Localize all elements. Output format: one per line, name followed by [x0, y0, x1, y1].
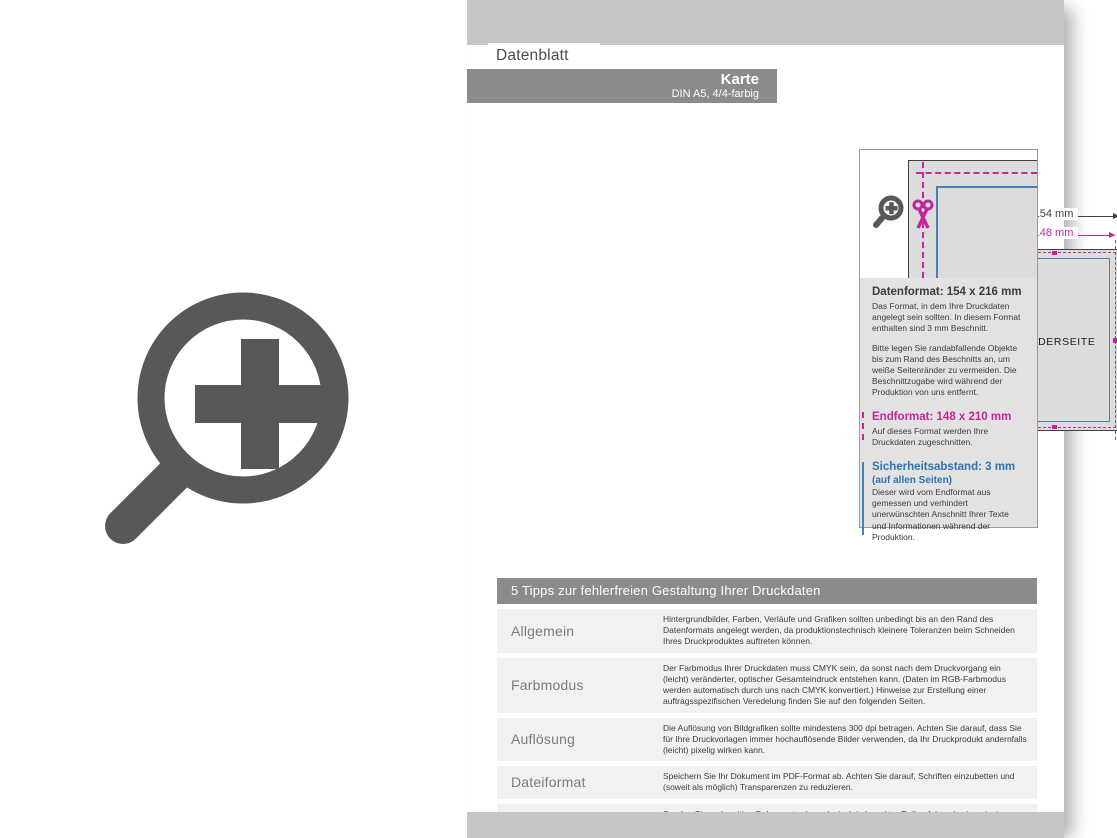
- scissors-icon: [909, 198, 937, 237]
- zoom-plus-icon: [95, 268, 360, 563]
- table-row: Auflösung Die Auflösung von Bildgrafiken…: [497, 718, 1037, 762]
- safety-line-legend-swatch: [862, 462, 864, 535]
- endformat-title: Endformat: 148 x 210 mm: [872, 411, 1025, 425]
- corner-detail-illustration: [860, 150, 1037, 278]
- cut-line-legend-swatch: [862, 412, 864, 440]
- endformat-paragraph: Auf dieses Format werden Ihre Druckdaten…: [872, 426, 1025, 448]
- datenformat-title: Datenformat: 154 x 216 mm: [872, 286, 1025, 300]
- tip-text: Die Auflösung von Bildgrafiken sollte mi…: [663, 718, 1037, 762]
- datenformat-section: Datenformat: 154 x 216 mm Das Format, in…: [872, 286, 1025, 398]
- product-title: Karte: [467, 71, 759, 88]
- tip-text: Speichern Sie Ihr Dokument im PDF-Format…: [663, 766, 1037, 798]
- table-row: Allgemein Hintergrundbilder, Farben, Ver…: [497, 609, 1037, 653]
- format-info-text: Datenformat: 154 x 216 mm Das Format, in…: [860, 278, 1037, 527]
- bottom-gray-bar: [467, 812, 1064, 838]
- table-row: Dateiformat Speichern Sie Ihr Dokument i…: [497, 766, 1037, 798]
- tip-label: Farbmodus: [497, 658, 663, 713]
- sicherheitsabstand-subtitle: (auf allen Seiten): [872, 475, 1025, 487]
- datenformat-paragraph-1: Das Format, in dem Ihre Druckdaten angel…: [872, 301, 1025, 334]
- datenblatt-tab: Datenblatt: [488, 43, 600, 69]
- sicherheitsabstand-section: Sicherheitsabstand: 3 mm (auf allen Seit…: [872, 461, 1025, 543]
- tip-text: Der Farbmodus Ihrer Druckdaten muss CMYK…: [663, 658, 1037, 713]
- datenformat-paragraph-2: Bitte legen Sie randabfallende Objekte b…: [872, 343, 1025, 398]
- datasheet-sheet: Datenblatt Karte DIN A5, 4/4-farbig 154 …: [467, 0, 1064, 838]
- datasheet-page-view: Datenblatt Karte DIN A5, 4/4-farbig 154 …: [0, 0, 1117, 838]
- table-row: Farbmodus Der Farbmodus Ihrer Druckdaten…: [497, 658, 1037, 713]
- zoom-plus-icon: [870, 194, 906, 237]
- tip-text: Hintergrundbilder, Farben, Verläufe und …: [663, 609, 1037, 653]
- tip-label: Auflösung: [497, 718, 663, 762]
- tips-table: 5 Tipps zur fehlerfreien Gestaltung Ihre…: [497, 578, 1037, 838]
- tips-table-title: 5 Tipps zur fehlerfreien Gestaltung Ihre…: [497, 578, 1037, 604]
- sicherheitsabstand-title: Sicherheitsabstand: 3 mm: [872, 461, 1025, 475]
- format-info-box: Datenformat: 154 x 216 mm Das Format, in…: [859, 149, 1038, 528]
- sicherheitsabstand-paragraph: Dieser wird vom Endformat aus gemessen u…: [872, 487, 1025, 542]
- endformat-section: Endformat: 148 x 210 mm Auf dieses Forma…: [872, 411, 1025, 448]
- top-gray-bar: [467, 0, 1064, 45]
- product-title-bar: Karte DIN A5, 4/4-farbig: [467, 69, 777, 103]
- tip-label: Dateiformat: [497, 766, 663, 798]
- tip-label: Allgemein: [497, 609, 663, 653]
- product-subtitle: DIN A5, 4/4-farbig: [467, 88, 759, 101]
